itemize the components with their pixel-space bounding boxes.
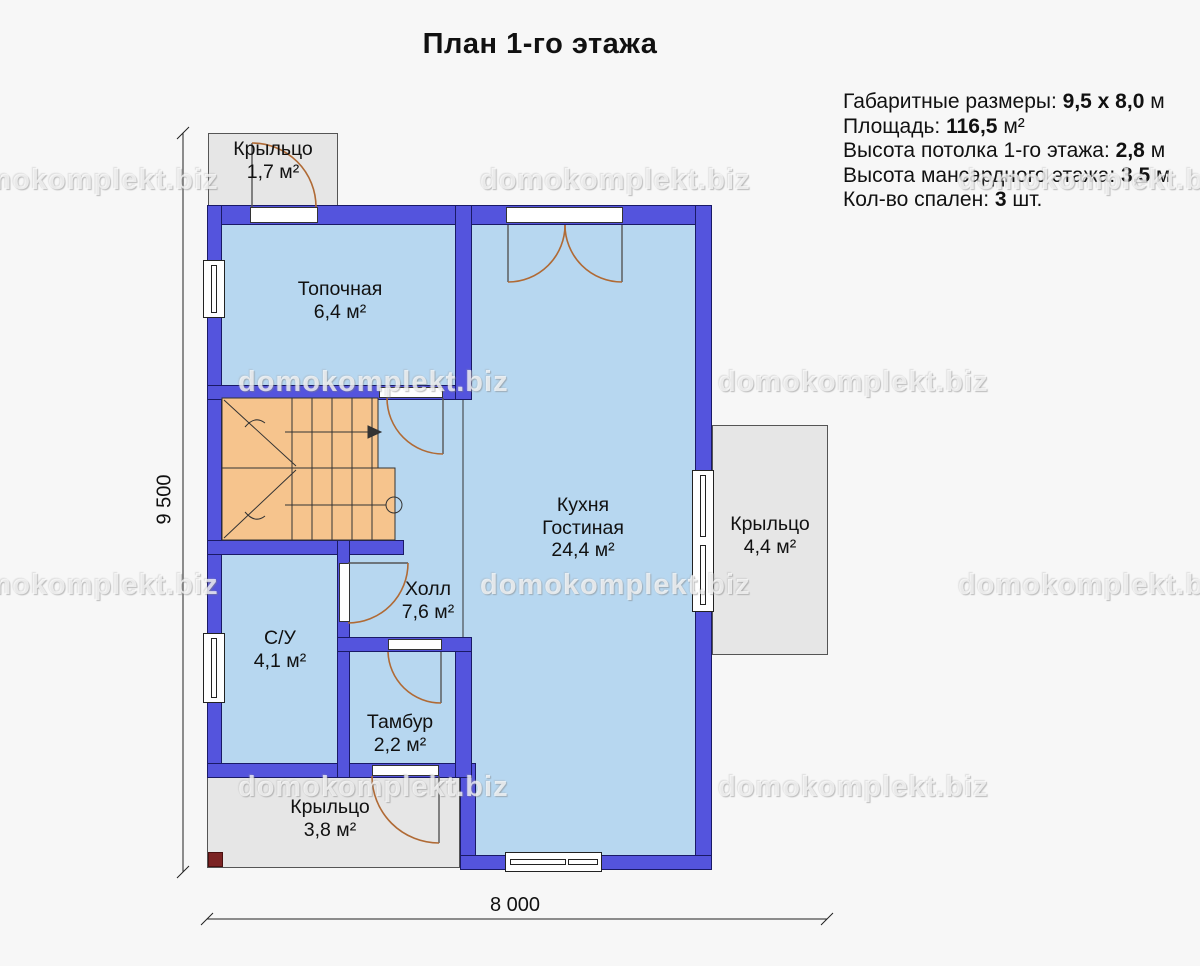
- dimension-ticks-height: [177, 127, 189, 878]
- watermark: domokomplekt.biz: [0, 569, 219, 602]
- label-porch-right: Крыльцо4,4 м²: [712, 513, 828, 558]
- door-opening-top-porch: [250, 207, 318, 223]
- info-line-area: Площадь: 116,5 м²: [843, 115, 1183, 140]
- info-line-ceiling-height: Высота потолка 1-го этажа: 2,8 м: [843, 139, 1183, 164]
- label-vestibule: Тамбур2,2 м²: [350, 711, 450, 756]
- wall-boiler-kitchen: [455, 205, 472, 400]
- wall-vestibule-kitchen: [455, 637, 472, 778]
- dimension-width-label: 8 000: [460, 894, 570, 917]
- door-opening-french-kitchen: [506, 207, 623, 223]
- porch-corner-post: [208, 852, 223, 867]
- wall-stairs-bottom: [207, 540, 404, 555]
- door-opening-hall-vestibule: [388, 639, 442, 650]
- watermark: domokomplekt.biz: [718, 366, 989, 399]
- floorplan-canvas: План 1-го этажа Габаритные размеры: 9,5 …: [0, 0, 1200, 966]
- window-boiler-room: [203, 260, 225, 318]
- info-block: Габаритные размеры: 9,5 x 8,0 м Площадь:…: [843, 90, 1183, 213]
- watermark: domokomplekt.biz: [0, 164, 219, 197]
- page-title: План 1-го этажа: [0, 28, 1080, 61]
- watermark: domokomplekt.biz: [958, 569, 1200, 602]
- door-opening-bathroom: [339, 563, 350, 622]
- label-kitchen-living: Кухня Гостиная24,4 м²: [513, 494, 653, 562]
- dimension-height-label: 9 500: [154, 460, 177, 540]
- info-line-dimensions: Габаритные размеры: 9,5 x 8,0 м: [843, 90, 1183, 115]
- window-kitchen-east: [692, 470, 714, 612]
- label-bathroom: С/У4,1 м²: [230, 627, 330, 672]
- label-hall: Холл7,6 м²: [378, 578, 478, 623]
- label-boiler-room: Топочная6,4 м²: [270, 278, 410, 323]
- label-porch-top: Крыльцо1,7 м²: [212, 138, 334, 183]
- label-porch-bottom: Крыльцо3,8 м²: [270, 796, 390, 841]
- info-line-bedrooms: Кол-во спален: 3 шт.: [843, 188, 1183, 213]
- info-line-attic-height: Высота мансардного этажа: 3,5 м: [843, 164, 1183, 189]
- door-opening-boiler: [379, 387, 443, 398]
- window-bathroom: [203, 633, 225, 703]
- door-opening-vestibule-porch: [372, 765, 439, 776]
- window-kitchen-south: [505, 852, 602, 872]
- watermark: domokomplekt.biz: [718, 771, 989, 804]
- watermark: domokomplekt.biz: [480, 164, 751, 197]
- wall-kitchen-west-lower: [460, 763, 476, 870]
